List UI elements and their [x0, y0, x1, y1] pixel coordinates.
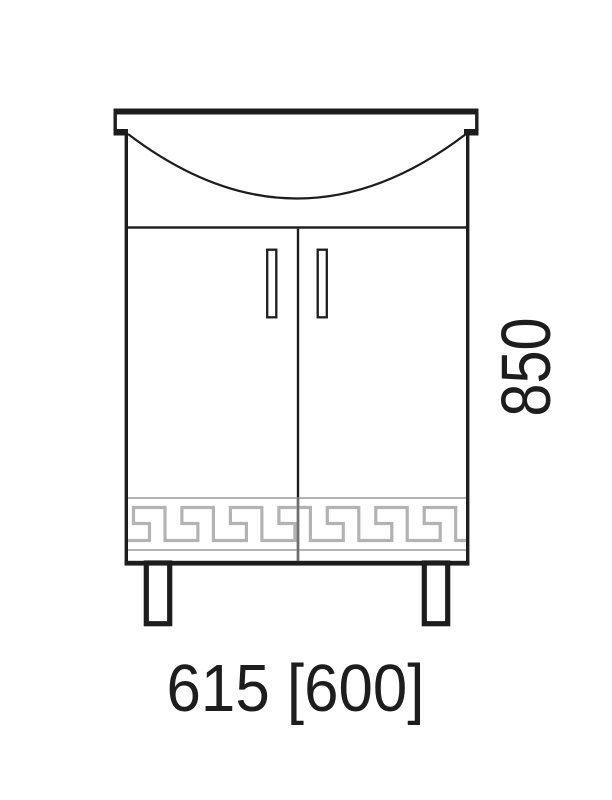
svg-text:850: 850	[487, 317, 566, 416]
svg-text:615 [600]: 615 [600]	[167, 651, 425, 726]
